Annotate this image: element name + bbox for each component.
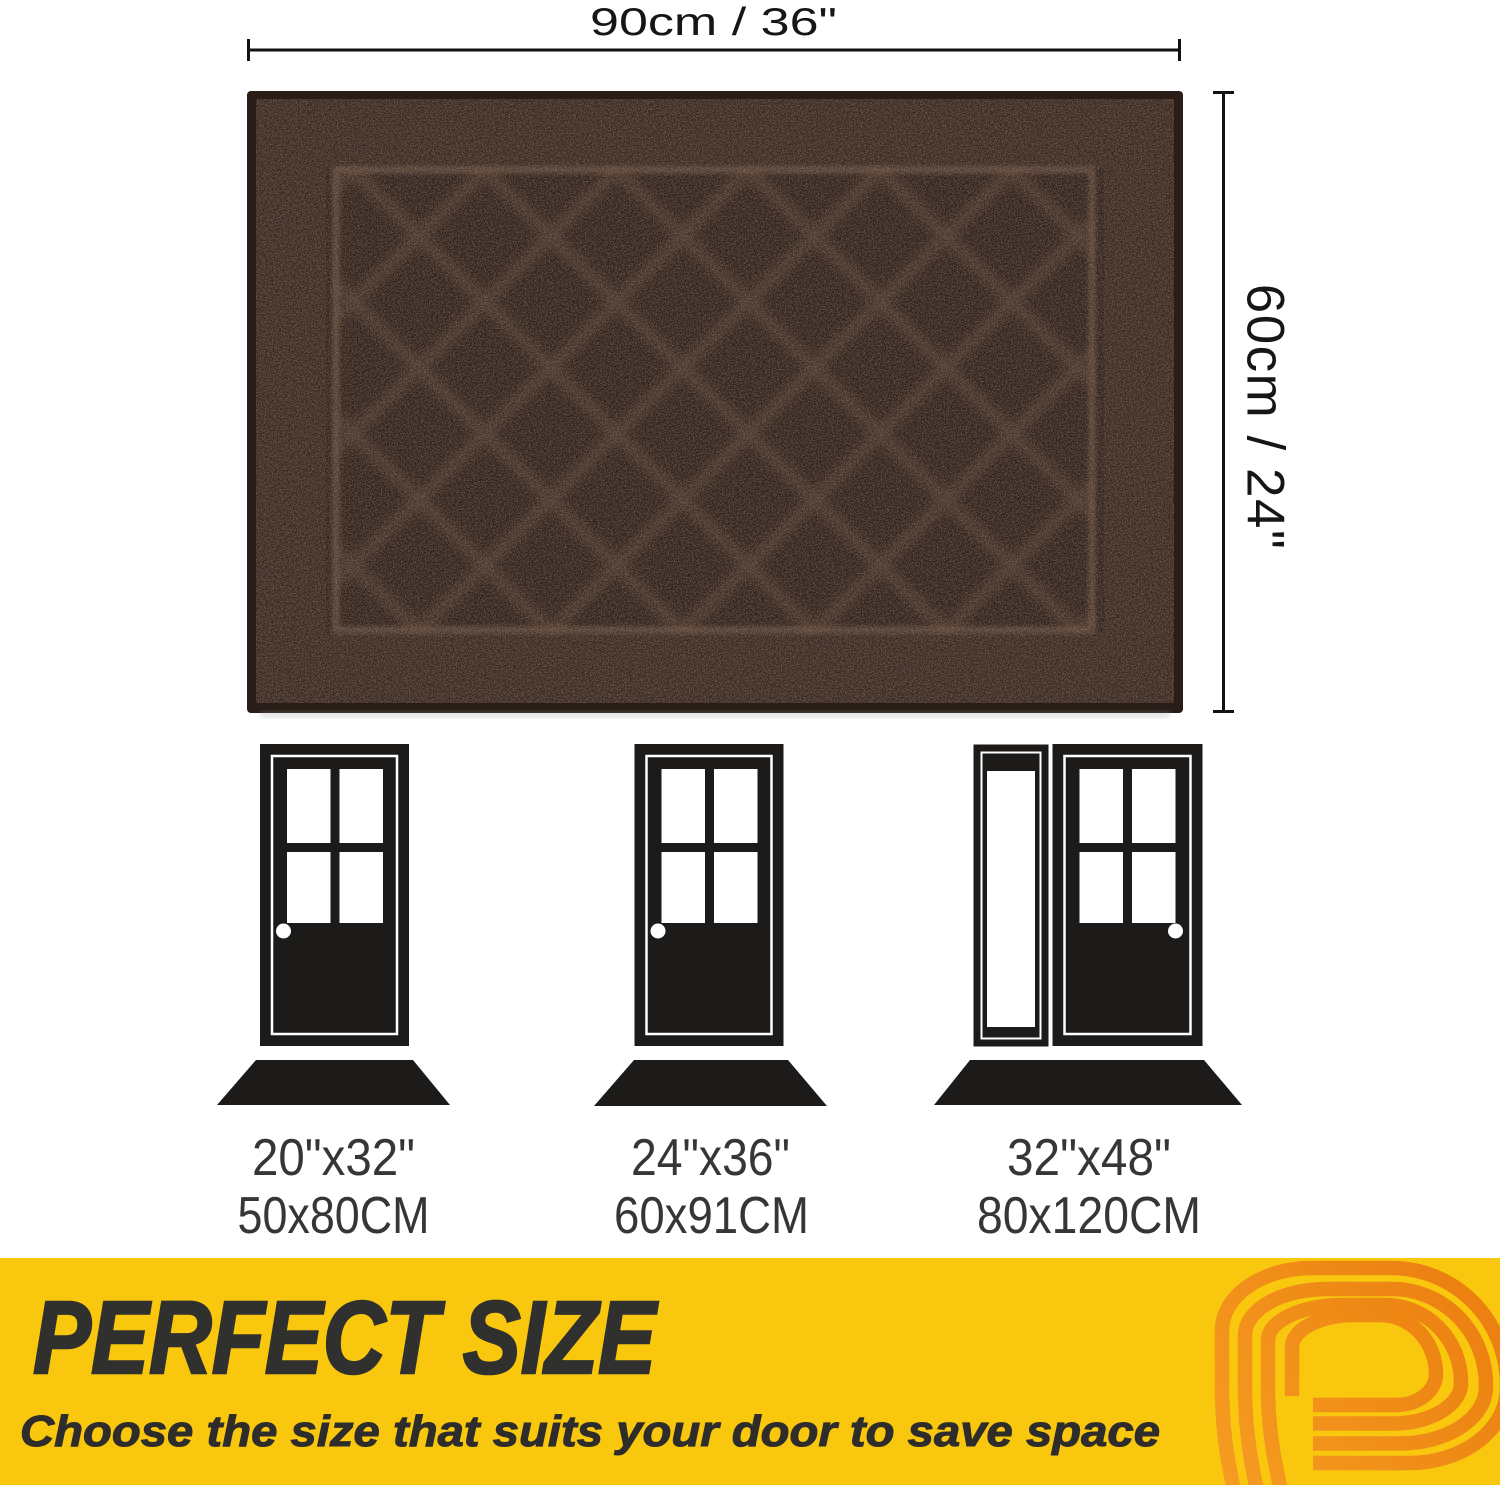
svg-text:50x80CM: 50x80CM (238, 1187, 430, 1245)
svg-text:90cm / 36": 90cm / 36" (590, 1, 837, 44)
svg-text:80x120CM: 80x120CM (977, 1187, 1201, 1245)
svg-text:60cm / 24": 60cm / 24" (1236, 284, 1295, 551)
svg-text:24"x36": 24"x36" (631, 1129, 790, 1187)
svg-text:Choose the size that suits you: Choose the size that suits your door to … (20, 1407, 1160, 1456)
svg-text:60x91CM: 60x91CM (614, 1187, 809, 1245)
svg-text:20"x32": 20"x32" (252, 1129, 415, 1187)
svg-text:32"x48": 32"x48" (1007, 1129, 1171, 1187)
svg-text:PERFECT SIZE: PERFECT SIZE (33, 1280, 659, 1395)
